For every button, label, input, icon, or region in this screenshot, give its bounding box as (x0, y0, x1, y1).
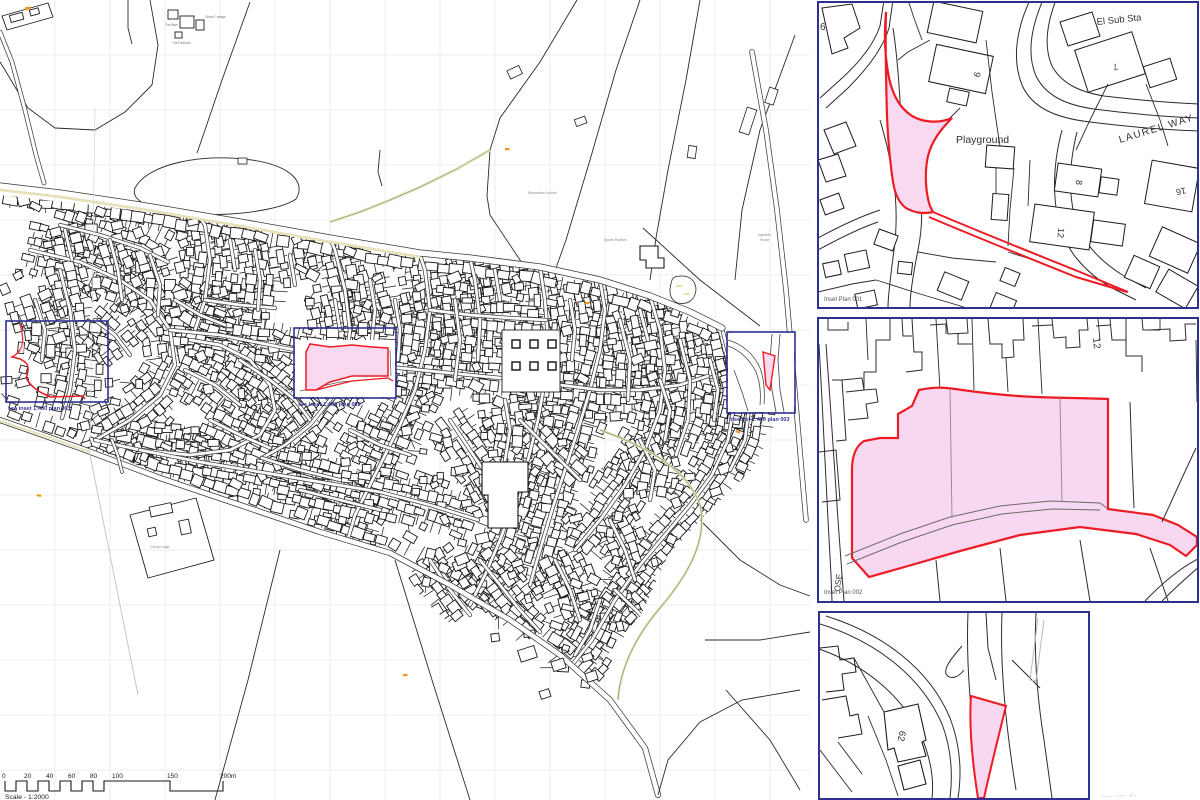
svg-text:see inset 1:400 plan 002: see inset 1:400 plan 002 (298, 402, 361, 408)
svg-text:200m: 200m (220, 773, 236, 780)
svg-text:Inset Plan 001: Inset Plan 001 (824, 297, 863, 303)
svg-text:20: 20 (24, 773, 32, 780)
svg-text:Recreation Ground: Recreation Ground (528, 191, 557, 195)
svg-text:......... . .;.-·· ··/·.·: ......... . .;.-·· ··/·.· (1100, 793, 1137, 799)
svg-text:150: 150 (167, 773, 178, 780)
svg-text:62: 62 (895, 730, 908, 742)
svg-text:Inset Plan 002: Inset Plan 002 (824, 590, 863, 596)
svg-text:Sports Pavilion: Sports Pavilion (604, 238, 627, 242)
svg-text:Glebe Cottage: Glebe Cottage (205, 15, 226, 19)
svg-text:Scale - 1:2000: Scale - 1:2000 (5, 794, 49, 800)
svg-text:12: 12 (1055, 228, 1066, 239)
svg-text:Cherry Lodge: Cherry Lodge (150, 545, 170, 549)
svg-text:House: House (760, 238, 769, 242)
svg-text:The Barn: The Barn (165, 23, 178, 27)
svg-text:Inset ref 1:400 plan 003: Inset ref 1:400 plan 003 (729, 417, 790, 423)
svg-text:100: 100 (112, 773, 123, 780)
svg-text:see inset 1:400 plan 001: see inset 1:400 plan 001 (8, 406, 71, 412)
svg-text:8: 8 (1074, 180, 1084, 186)
svg-text:Ingleside: Ingleside (758, 233, 771, 237)
svg-text:The Paddock: The Paddock (172, 41, 191, 45)
svg-text:16: 16 (1175, 186, 1187, 198)
svg-text:Playground: Playground (956, 134, 1009, 146)
svg-text:60: 60 (68, 773, 76, 780)
svg-text:40: 40 (46, 773, 54, 780)
svg-text:80: 80 (90, 773, 98, 780)
svg-text:12: 12 (1090, 337, 1102, 349)
svg-text:6: 6 (820, 22, 826, 33)
svg-text:0: 0 (2, 773, 6, 780)
